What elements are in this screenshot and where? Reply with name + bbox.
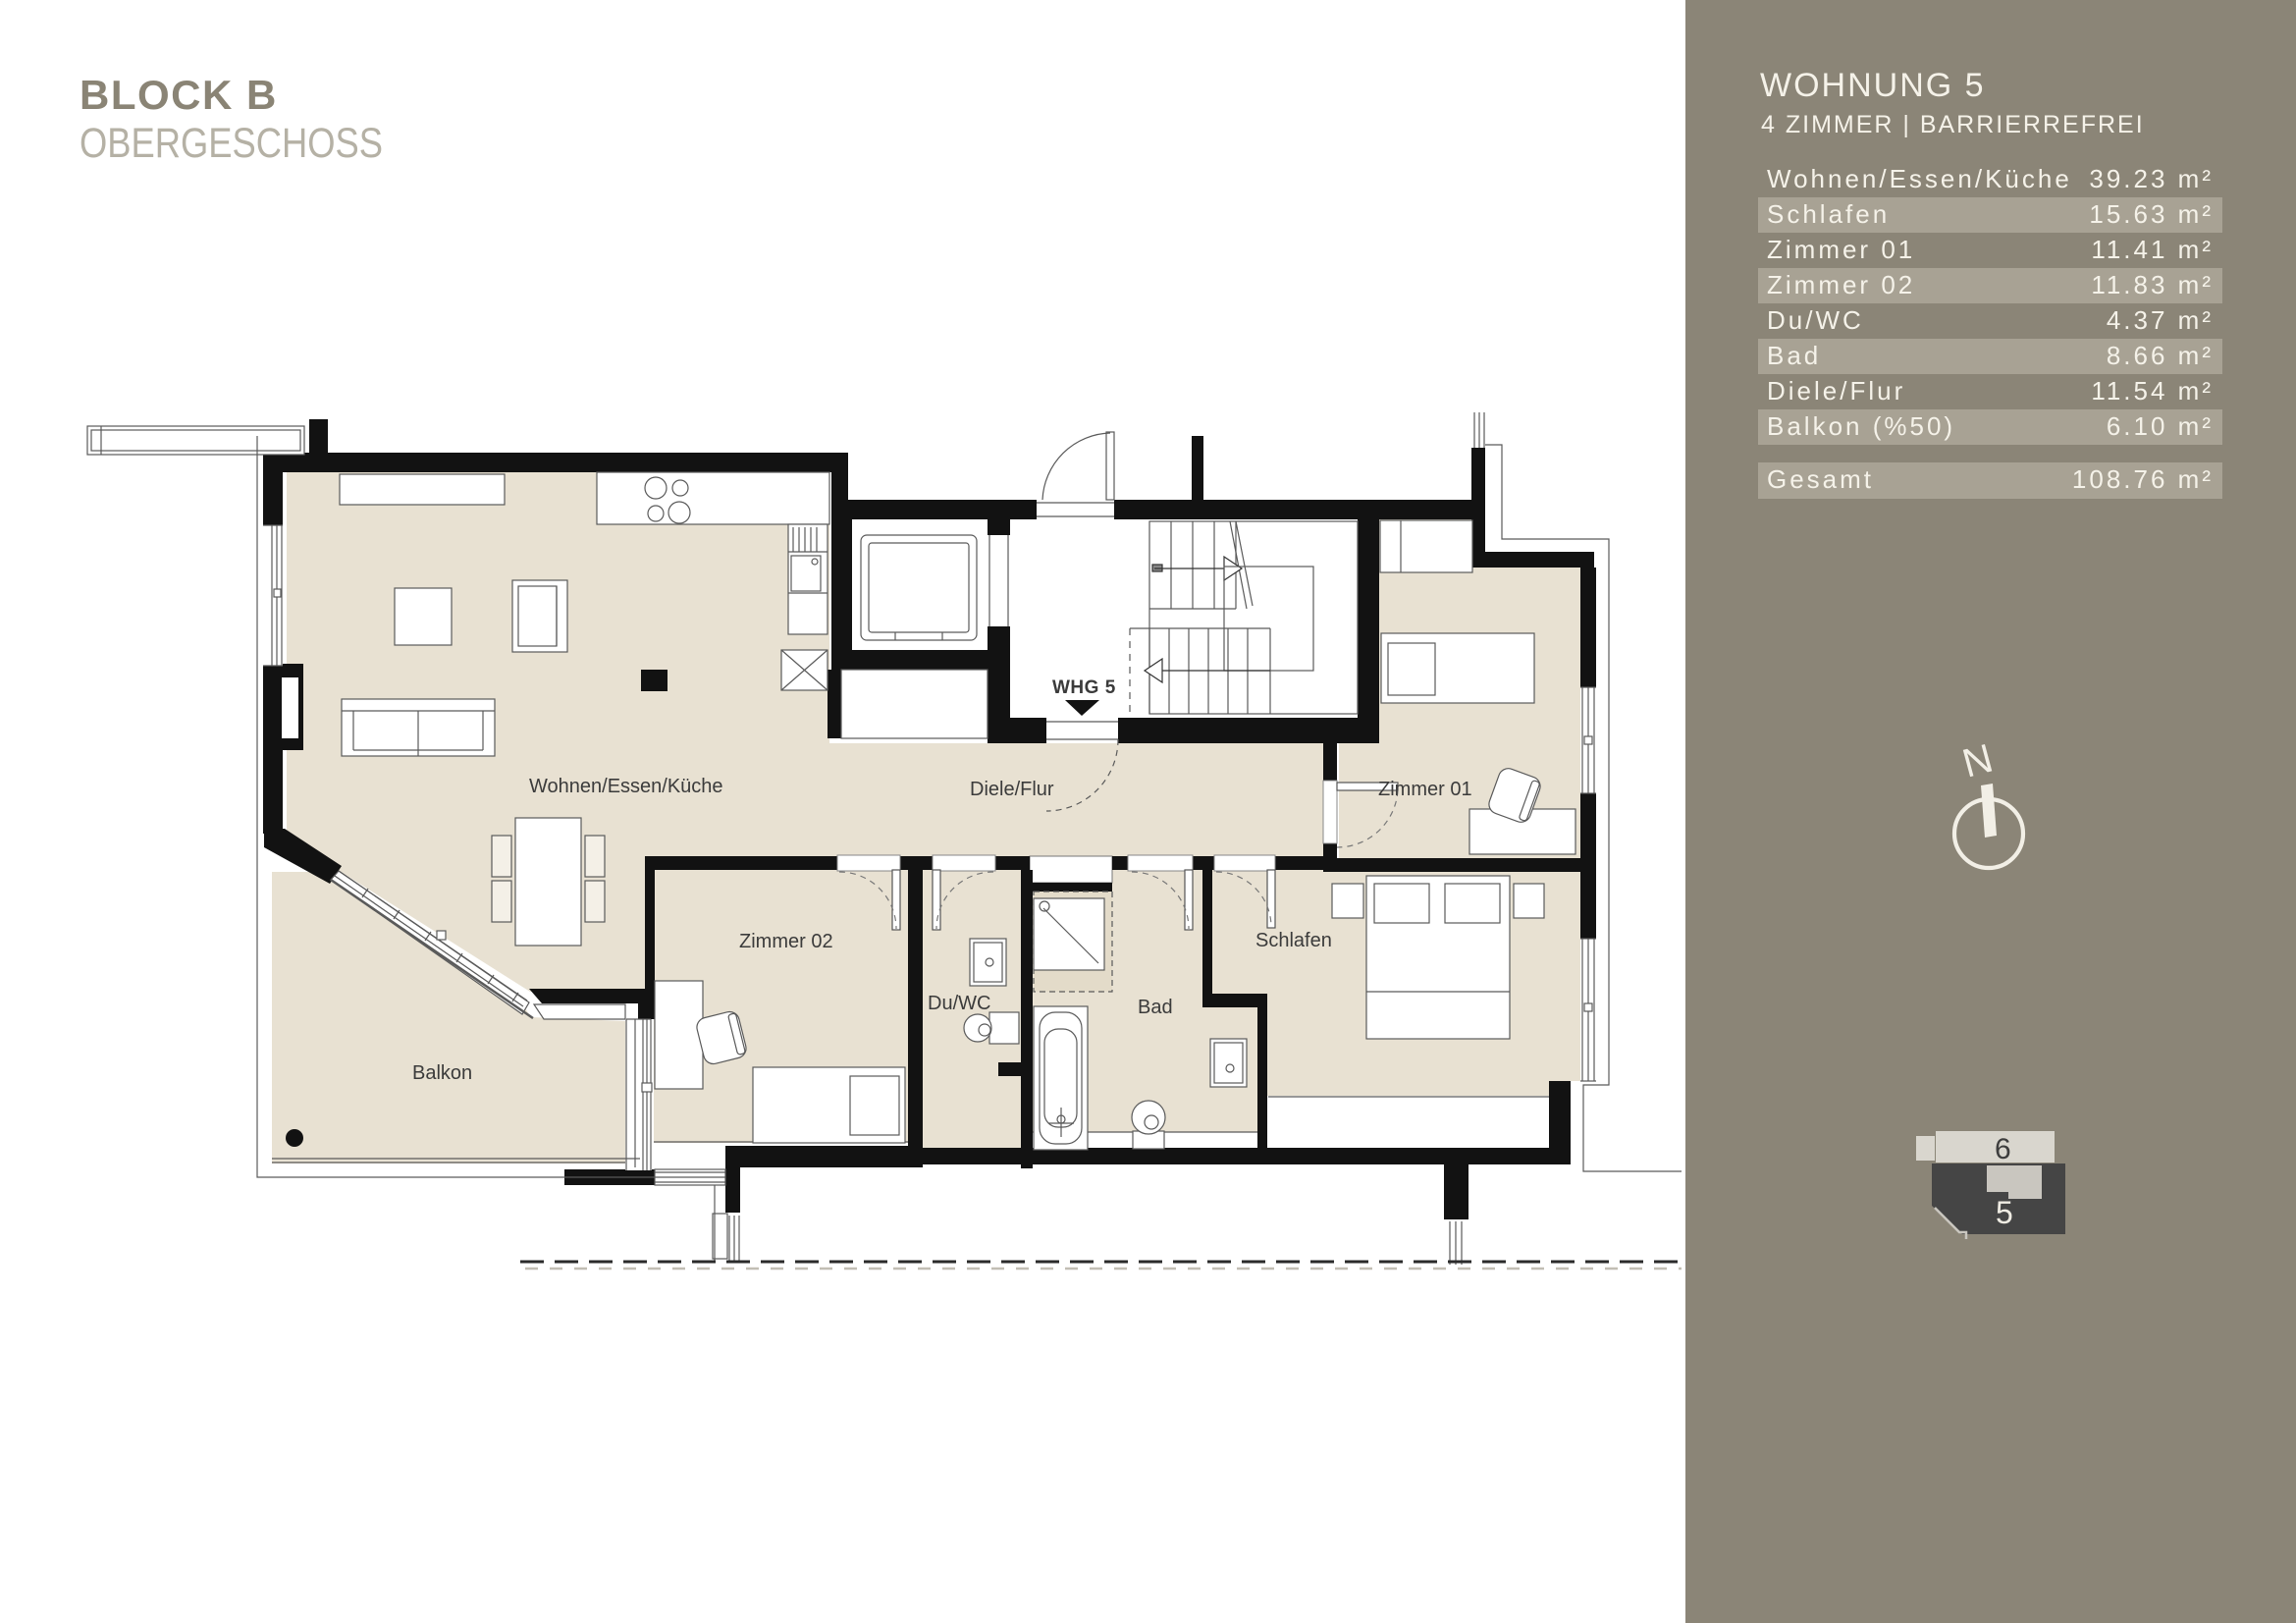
svg-text:WHG 5: WHG 5 bbox=[1052, 677, 1116, 698]
svg-text:Wohnen/Essen/Küche: Wohnen/Essen/Küche bbox=[1767, 164, 2072, 193]
svg-text:WOHNUNG 5: WOHNUNG 5 bbox=[1760, 67, 1986, 104]
svg-text:Zimmer 02: Zimmer 02 bbox=[1767, 270, 1915, 299]
svg-text:11.83 m²: 11.83 m² bbox=[2091, 270, 2214, 299]
svg-text:Bad: Bad bbox=[1138, 997, 1173, 1018]
svg-text:BLOCK B: BLOCK B bbox=[80, 72, 278, 118]
svg-text:Diele/Flur: Diele/Flur bbox=[1767, 376, 1905, 406]
svg-text:Diele/Flur: Diele/Flur bbox=[970, 779, 1054, 800]
svg-text:Gesamt: Gesamt bbox=[1767, 464, 1874, 494]
svg-text:Schlafen: Schlafen bbox=[1255, 930, 1332, 951]
svg-text:5: 5 bbox=[1996, 1195, 2013, 1230]
svg-text:Du/WC: Du/WC bbox=[1767, 305, 1864, 335]
svg-text:Zimmer 02: Zimmer 02 bbox=[739, 931, 833, 952]
svg-text:4.37 m²: 4.37 m² bbox=[2107, 305, 2214, 335]
svg-text:OBERGESCHOSS: OBERGESCHOSS bbox=[80, 120, 383, 167]
svg-text:11.41 m²: 11.41 m² bbox=[2091, 235, 2214, 264]
svg-text:15.63 m²: 15.63 m² bbox=[2089, 199, 2214, 229]
svg-text:39.23 m²: 39.23 m² bbox=[2089, 164, 2214, 193]
svg-text:8.66 m²: 8.66 m² bbox=[2107, 341, 2214, 370]
svg-text:Du/WC: Du/WC bbox=[928, 993, 990, 1014]
svg-text:Bad: Bad bbox=[1767, 341, 1821, 370]
svg-text:Schlafen: Schlafen bbox=[1767, 199, 1890, 229]
svg-text:108.76 m²: 108.76 m² bbox=[2072, 464, 2214, 494]
svg-text:4 ZIMMER | BARRIERREFREI: 4 ZIMMER | BARRIERREFREI bbox=[1761, 111, 2145, 138]
svg-text:Zimmer 01: Zimmer 01 bbox=[1767, 235, 1915, 264]
svg-text:6: 6 bbox=[1995, 1133, 2011, 1165]
svg-text:Zimmer 01: Zimmer 01 bbox=[1378, 779, 1472, 800]
svg-text:6.10 m²: 6.10 m² bbox=[2107, 411, 2214, 441]
svg-text:Balkon (%50): Balkon (%50) bbox=[1767, 411, 1955, 441]
svg-text:11.54 m²: 11.54 m² bbox=[2091, 376, 2214, 406]
svg-text:Wohnen/Essen/Küche: Wohnen/Essen/Küche bbox=[529, 776, 723, 797]
svg-text:Balkon: Balkon bbox=[412, 1062, 472, 1084]
